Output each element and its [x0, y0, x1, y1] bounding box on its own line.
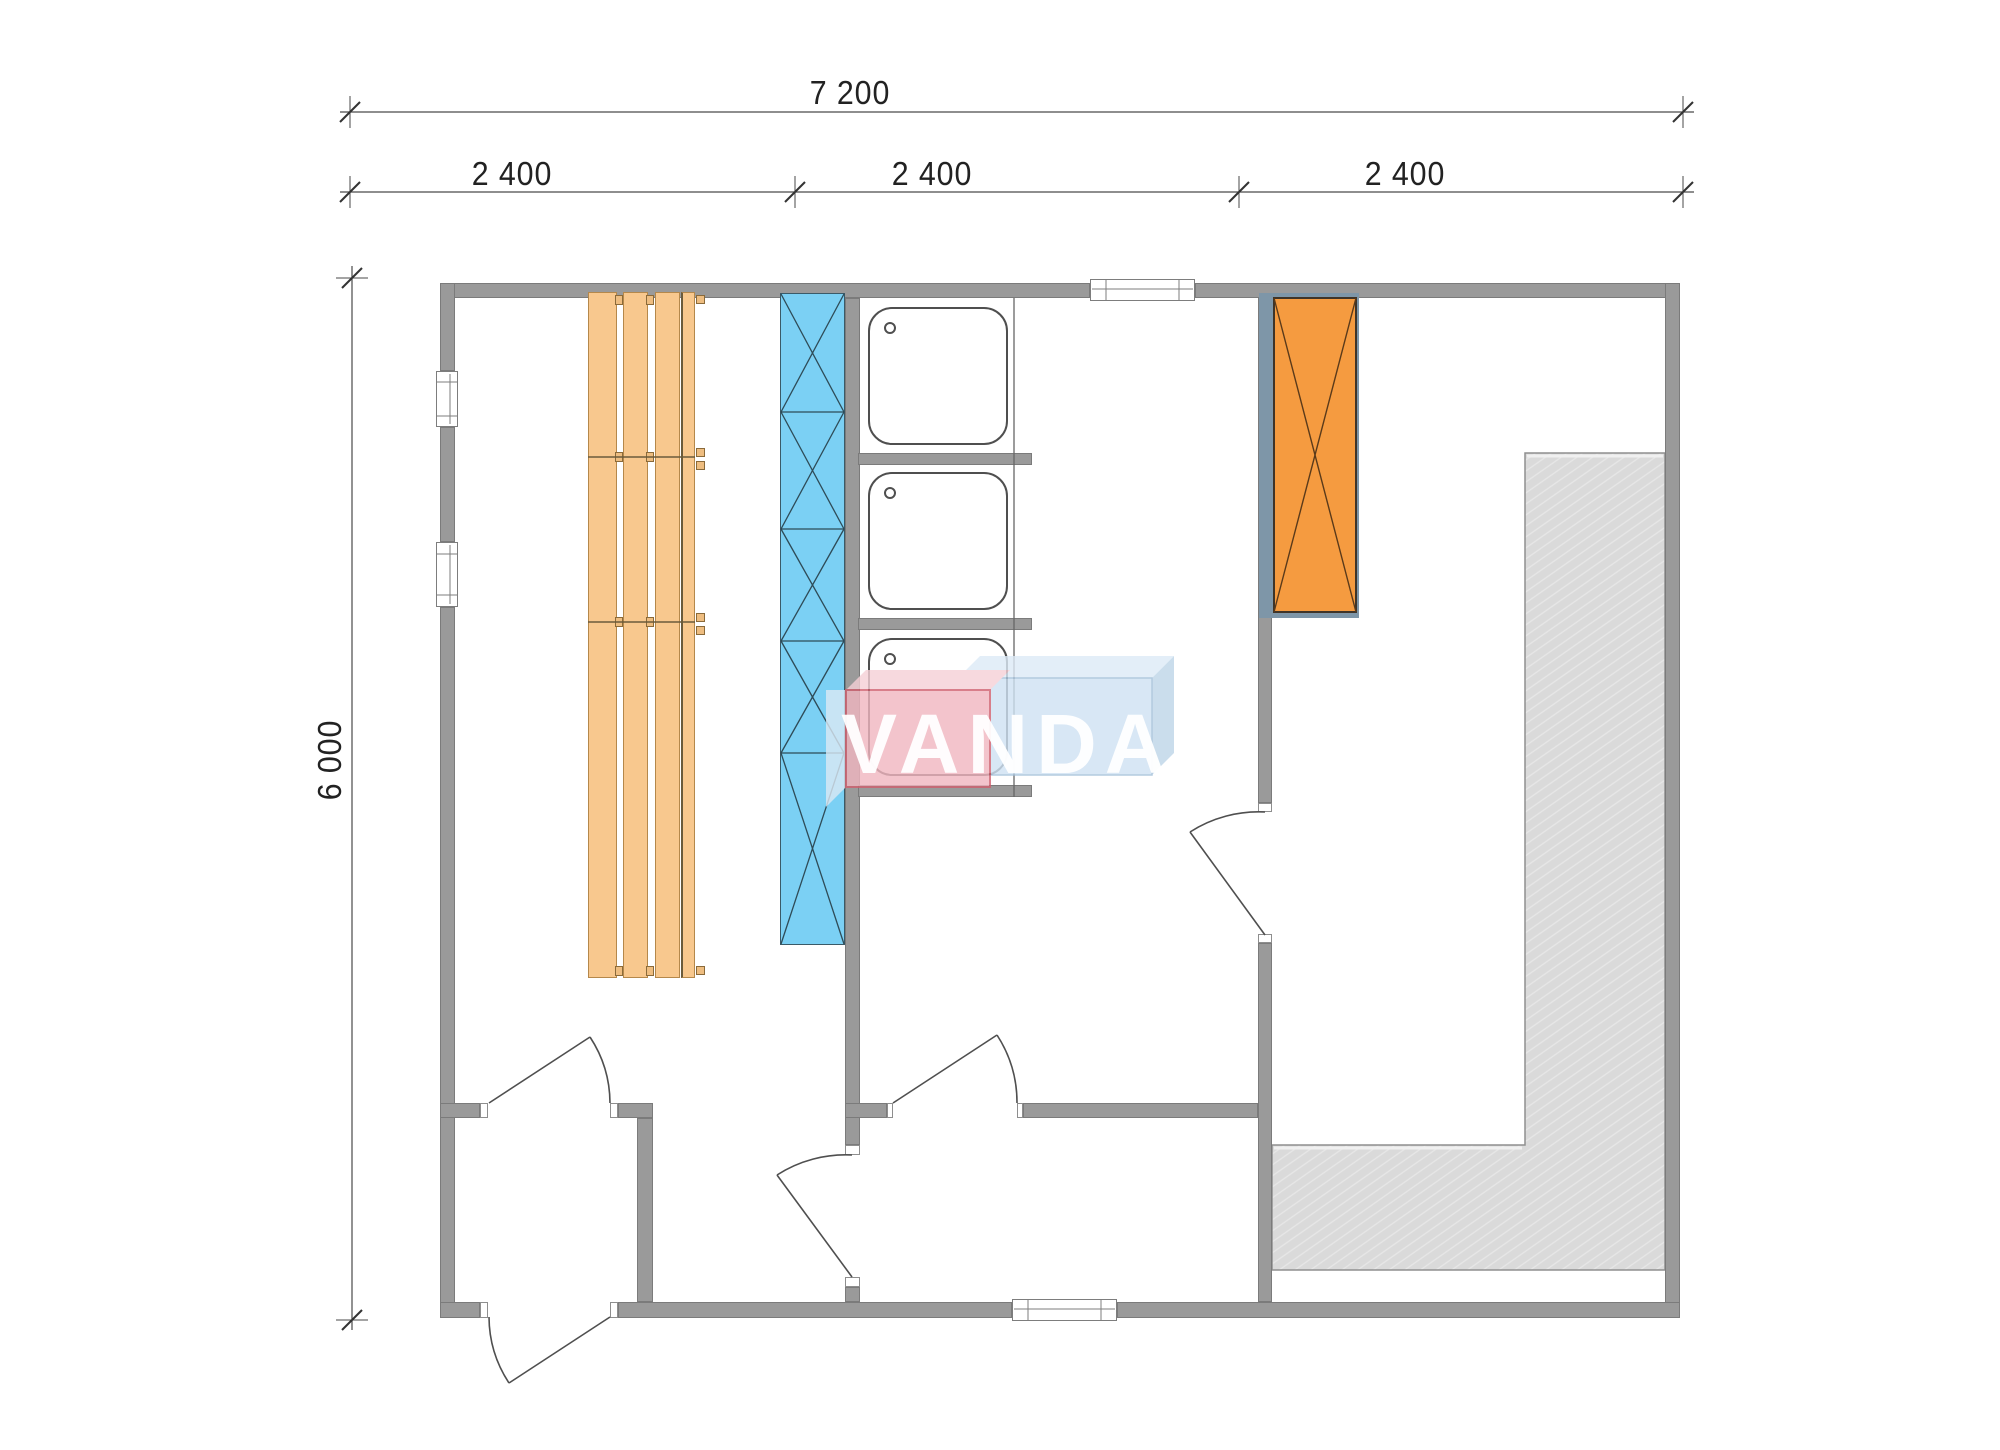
vanda-watermark-text: VANDA: [841, 700, 1171, 792]
floor-plan-canvas: 7 200 2 400 2 400 2 400 6 000 VANDA: [0, 0, 2000, 1450]
